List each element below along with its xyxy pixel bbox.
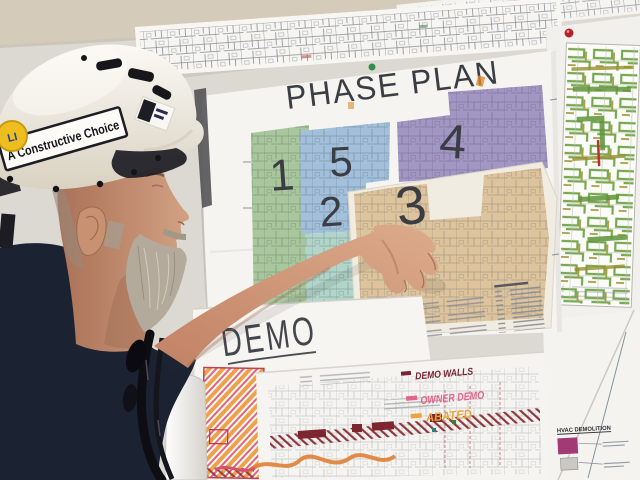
orange-tape-small bbox=[348, 102, 354, 109]
hvac-legend-swatch-gray bbox=[560, 457, 578, 470]
photo-construction-worker-phase-plan: NE S HVAC DEMOLITION bbox=[0, 0, 640, 480]
red-pushpin bbox=[565, 29, 574, 38]
zone-2-number: 2 bbox=[318, 187, 345, 236]
zone-4-number: 4 bbox=[438, 115, 468, 170]
zone-1-number: 1 bbox=[268, 150, 296, 201]
bottom-right-sheet: HVAC DEMOLITION bbox=[543, 310, 640, 480]
hat-logo-badge: LI bbox=[0, 121, 27, 151]
abatement-plan-thumbnail bbox=[202, 367, 264, 478]
photo-canvas: NE S HVAC DEMOLITION bbox=[0, 0, 640, 480]
zone-5-number: 5 bbox=[328, 137, 354, 185]
hvac-legend-swatch bbox=[557, 437, 578, 454]
